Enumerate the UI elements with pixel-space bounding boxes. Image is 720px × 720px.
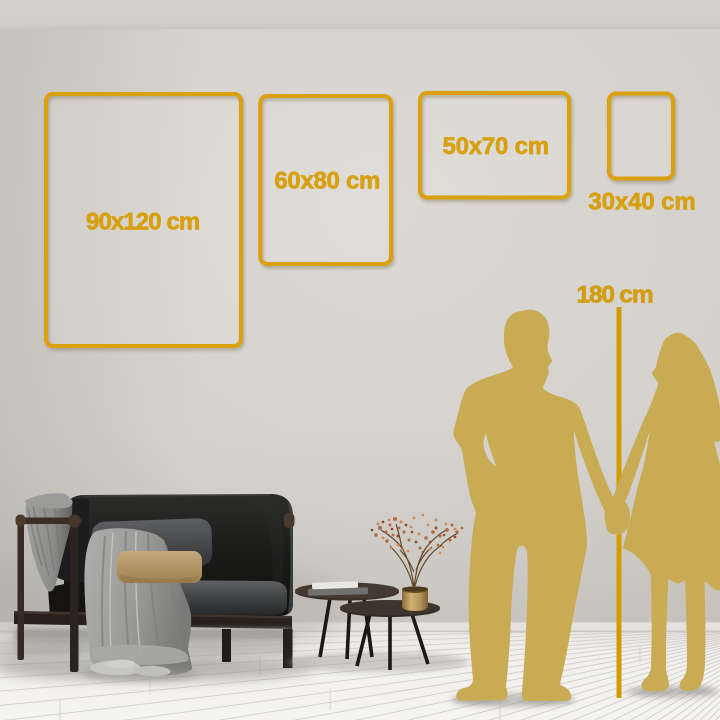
svg-text:50x70 cm: 50x70 cm xyxy=(442,133,549,160)
svg-text:30x40 cm: 30x40 cm xyxy=(588,189,695,216)
svg-text:60x80 cm: 60x80 cm xyxy=(274,168,380,195)
svg-text:180 cm: 180 cm xyxy=(577,282,653,309)
svg-text:90x120 cm: 90x120 cm xyxy=(86,209,199,236)
